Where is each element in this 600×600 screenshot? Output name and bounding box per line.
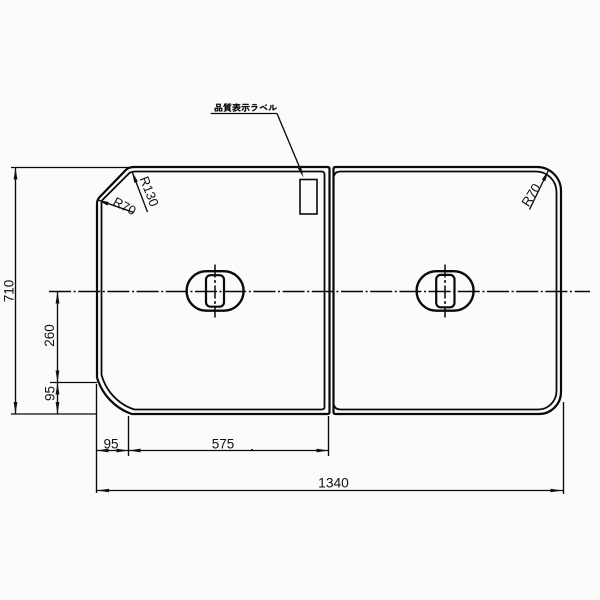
svg-text:260: 260 — [42, 324, 57, 347]
svg-text:1340: 1340 — [318, 476, 349, 491]
svg-text:710: 710 — [2, 280, 17, 303]
svg-text:95: 95 — [43, 386, 58, 401]
svg-text:95: 95 — [103, 437, 118, 452]
svg-text:575: 575 — [212, 437, 235, 452]
